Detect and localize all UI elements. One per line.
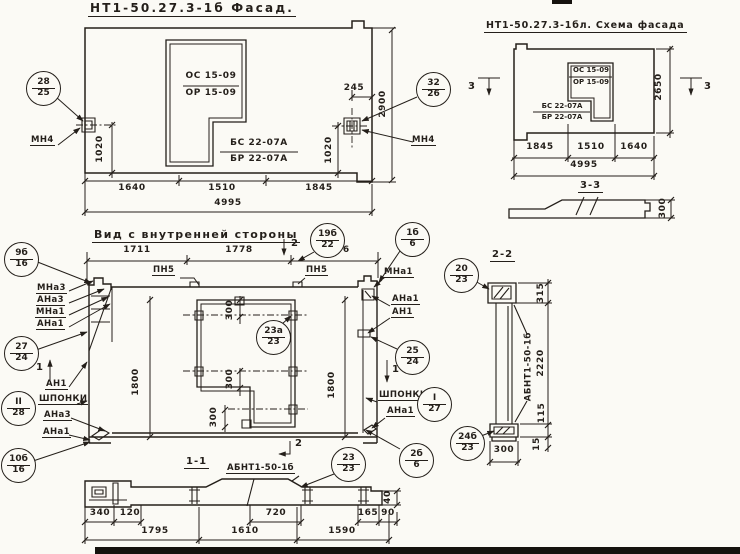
inner-view-title: Вид с внутренней стороны [92, 229, 300, 243]
plate-label-pn5-left: ПН5 [152, 266, 175, 276]
section-marker-1-left: 1 [36, 362, 43, 373]
dim-720: 720 [256, 509, 296, 519]
callout-sheet: 23 [262, 337, 286, 348]
dim-1800-right: 1800 [328, 363, 338, 407]
anchor-label-mn4-right: МН4 [411, 136, 436, 146]
callout-sheet: 23 [450, 275, 474, 286]
dim-245: 245 [340, 84, 368, 94]
callout-sheet: 6 [405, 460, 429, 471]
dim-315: 315 [537, 271, 547, 315]
anchor-label-mna1-left: МНа1 [35, 308, 66, 318]
dim-300-mid: 300 [226, 357, 236, 401]
panel-mark-abnt-11: АБНТ1-50-1б [226, 464, 295, 474]
panel-mark-abnt-22: АБНТ1-50-1б [524, 332, 533, 402]
callout-number: 27 [15, 343, 28, 353]
callout-20-23: 20 23 [444, 258, 479, 293]
callout-sheet: 24 [401, 357, 425, 368]
dim-120: 120 [110, 509, 150, 519]
callout-sheet: 24 [10, 353, 34, 364]
dim-15: 15 [533, 422, 543, 466]
dim-1845-schema: 1845 [515, 143, 565, 153]
section-marker-3-left: 3 [468, 81, 475, 92]
callout-number: 20 [455, 265, 468, 275]
anchor-label-ana3-left: АНа3 [36, 296, 65, 306]
dim-300-section22: 300 [484, 446, 524, 456]
callout-number: 9б [15, 249, 28, 259]
callout-number: 23а [264, 327, 283, 337]
anchor-label-ana1-right-bottom: АНа1 [386, 407, 415, 417]
facade-sill-mark-bottom: БР 22-07А [219, 155, 299, 165]
anchor-label-ana3-bottom: АНа3 [43, 411, 72, 421]
callout-9b-16: 9б 16 [4, 242, 39, 277]
section-marker-2-bottom: 2 [295, 438, 302, 449]
callout-25-24: 25 24 [395, 340, 430, 375]
callout-28-25: 28 25 [26, 71, 61, 106]
facade-window-mark-top: ОС 15-09 [182, 72, 240, 82]
callout-number: I [433, 394, 436, 404]
dim-2220: 2220 [537, 341, 547, 385]
callout-number: 10б [9, 455, 28, 465]
facade-sill-mark-top: БС 22-07А [219, 139, 299, 149]
anchor-label-mna1-right: МНа1 [383, 268, 414, 278]
dim-2650: 2650 [655, 65, 665, 109]
anchor-label-mna3-left: МНа3 [36, 284, 67, 294]
scan-artifact-bottom-band [95, 547, 740, 554]
anchor-label-ana1-right: АНа1 [391, 295, 420, 305]
callout-24b-23: 24б 23 [450, 426, 485, 461]
callout-10b-16: 10б 16 [1, 448, 36, 483]
dim-1640: 1640 [107, 184, 157, 194]
plate-label-pn5-right: ПН5 [305, 266, 328, 276]
callout-sheet: 22 [316, 240, 340, 251]
callout-sheet: 28 [7, 408, 31, 419]
callout-2b-6: 2б 6 [399, 443, 434, 478]
anchor-label-ana1-left: АНа1 [36, 320, 65, 330]
anchor-label-ana1-bottom: АНа1 [42, 428, 71, 438]
schema-window-mark-bottom: ОР 15-09 [568, 79, 614, 87]
dim-300-bottom: 300 [210, 395, 220, 439]
dim-2900: 2900 [379, 82, 389, 126]
callout-number: II [15, 398, 22, 408]
callout-19b-22: 19б 22 [310, 223, 345, 258]
callout-sheet: 16 [10, 259, 34, 270]
callout-number: 1б [406, 229, 419, 239]
dim-1795: 1795 [130, 527, 180, 537]
callout-32-26: 32 26 [416, 72, 451, 107]
callout-sheet: 23 [456, 443, 480, 454]
dim-1590: 1590 [317, 527, 367, 537]
dim-4995-facade: 4995 [203, 199, 253, 209]
scan-artifact-top-dash [552, 0, 572, 4]
section-1-1-title: 1-1 [184, 456, 209, 469]
schema-title: НТ1-50.27.3-1бл. Схема фасада [484, 21, 687, 33]
schema-sill-mark-top: БС 22-07А [532, 103, 592, 111]
callout-23-23: 23 23 [331, 447, 366, 482]
callout-number: 32 [427, 79, 440, 89]
callout-number: 23 [342, 454, 355, 464]
blueprint-sheet: НТ1-50.27.3-1б Фасад. ОС 15-09 ОР 15-09 … [0, 0, 740, 554]
schema-sill-mark-bottom: БР 22-07А [532, 114, 592, 122]
anchor-label-an1-right: АН1 [391, 308, 414, 318]
keys-label-left: шпонки [38, 395, 88, 405]
dim-1778: 1778 [214, 246, 264, 256]
callout-sheet: 23 [337, 464, 361, 475]
callout-27-24: 27 24 [4, 336, 39, 371]
section-marker-2-top: 2 [291, 238, 298, 249]
callout-number: 28 [37, 78, 50, 88]
dim-1800-left: 1800 [132, 360, 142, 404]
callout-sheet: 6 [401, 239, 425, 250]
anchor-label-an1-left: АН1 [45, 380, 68, 390]
dim-1640-schema: 1640 [609, 143, 659, 153]
anchor-label-mn4-left: МН4 [30, 136, 55, 146]
callout-23a-23: 23а 23 [256, 320, 291, 355]
dim-4995-schema: 4995 [559, 161, 609, 171]
section-3-3-title: 3-3 [578, 180, 603, 193]
callout-I-27: I 27 [417, 387, 452, 422]
callout-II-28: II 28 [1, 391, 36, 426]
dim-1020-right: 1020 [325, 128, 335, 172]
section-marker-3-right: 3 [704, 81, 711, 92]
leader-lines [33, 78, 702, 487]
callout-number: 2б [410, 450, 423, 460]
callout-sheet: 27 [423, 404, 447, 415]
dim-300-top: 300 [226, 288, 236, 332]
schema-window-mark-top: ОС 15-09 [568, 67, 614, 75]
callout-number: 19б [318, 230, 337, 240]
callout-1b-6: 1б 6 [395, 222, 430, 257]
facade-window-mark-bottom: ОР 15-09 [182, 89, 240, 99]
callout-number: 25 [406, 347, 419, 357]
callout-number: 24б [458, 433, 477, 443]
dim-1845: 1845 [294, 184, 344, 194]
dim-1020-left: 1020 [96, 127, 106, 171]
dim-1510: 1510 [197, 184, 247, 194]
callout-sheet: 25 [32, 88, 56, 99]
drawing-linework [0, 0, 740, 554]
section-2-2-title: 2-2 [490, 249, 515, 262]
callout-sheet: 16 [7, 465, 31, 476]
callout-sheet: 26 [422, 89, 446, 100]
facade-title: НТ1-50.27.3-1б Фасад. [88, 2, 296, 17]
dim-1711: 1711 [112, 246, 162, 256]
dim-300-section33: 300 [659, 186, 669, 230]
dim-90: 90 [374, 509, 402, 519]
panel-outlines [85, 21, 654, 507]
dim-1610: 1610 [220, 527, 270, 537]
